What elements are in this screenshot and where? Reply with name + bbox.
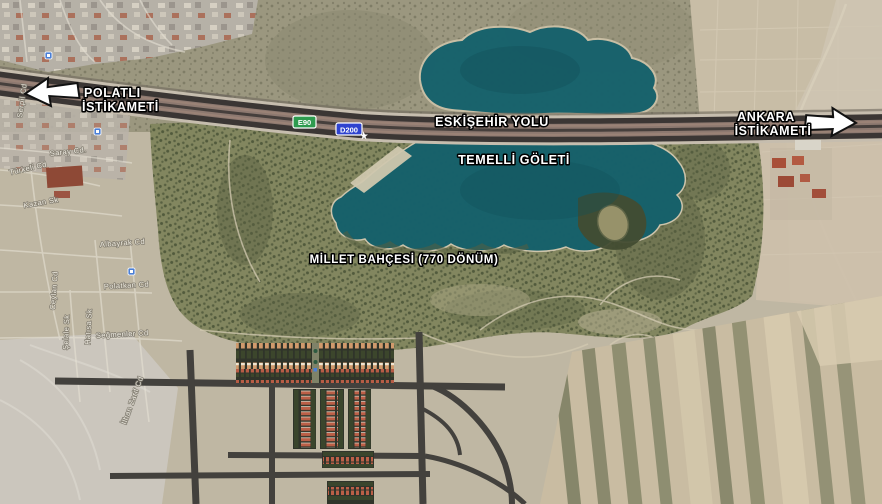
building-red-roof [46, 165, 83, 187]
park-name-label: MİLLET BAHÇESİ (770 DÖNÜM) [310, 253, 499, 266]
map-canvas: Serpil Cd Saray Cd. Türkeli Cd Kazan Sk … [0, 0, 882, 504]
housing-strip-vertical [293, 389, 371, 449]
bus-stop-icon [128, 268, 135, 275]
street-label: Hatısa Sk [83, 309, 94, 346]
direction-right-line1: ANKARA [737, 110, 795, 124]
e90-route-shield: E90 [293, 116, 316, 128]
e90-shield-label: E90 [298, 118, 311, 127]
satellite-map[interactable]: Serpil Cd Saray Cd. Türkeli Cd Kazan Sk … [0, 0, 882, 504]
bus-stop-icon [94, 128, 101, 135]
facility-buildings [770, 140, 832, 220]
direction-right-line2: İSTİKAMETİ [735, 123, 812, 138]
lake-name-label: TEMELLİ GÖLETİ [458, 152, 570, 167]
direction-left-line2: İSTİKAMETİ [82, 99, 159, 114]
direction-left-line1: POLATLI [84, 86, 141, 100]
bus-stop-icon [45, 52, 52, 59]
highway-name-label: ESKİŞEHİR YOLU [435, 114, 549, 129]
street-label: Şelale Sk [61, 314, 71, 350]
d200-shield-label: D200 [340, 126, 358, 135]
